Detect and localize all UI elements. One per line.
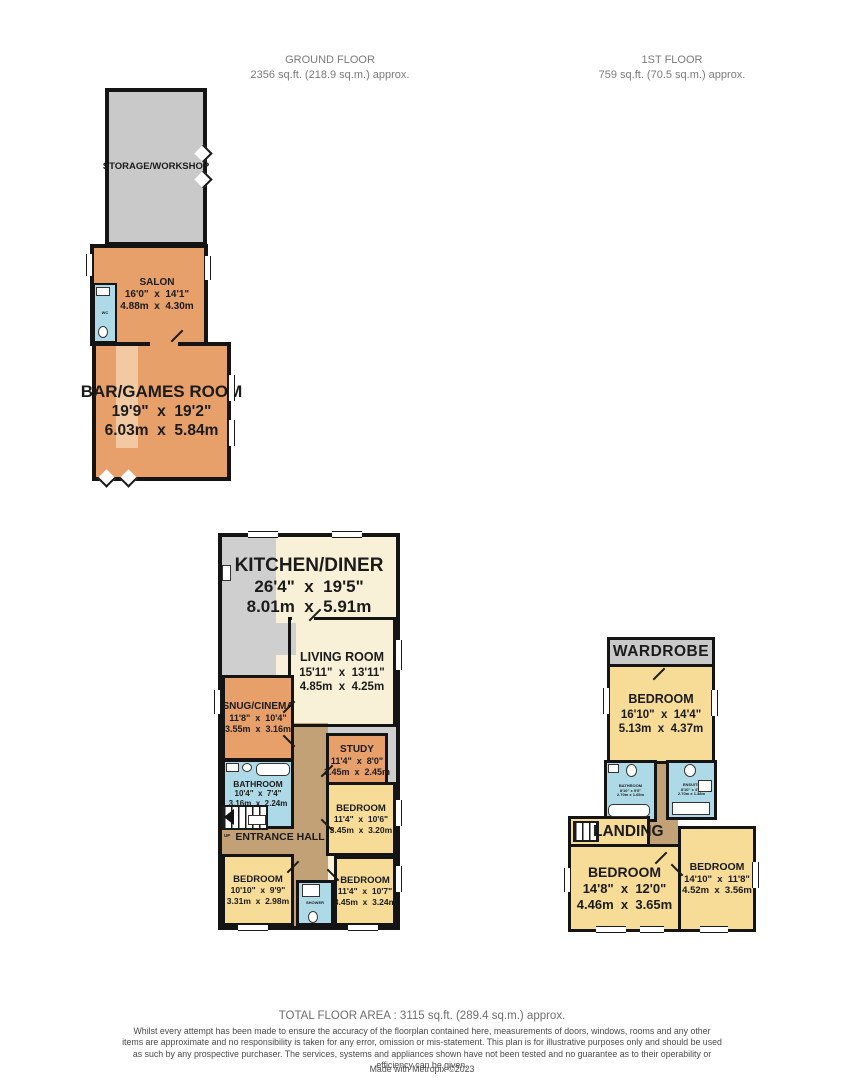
bar-games-name: BAR/GAMES ROOM	[81, 382, 243, 403]
entrance-hall-label: ENTRANCE HALL	[232, 831, 328, 843]
bedroom-bottom-right-label: BEDROOM 11'4" x 10'7" 3.45m x 3.24m	[334, 875, 396, 907]
shower-icon	[698, 780, 712, 792]
bedroom-bottom-right-metric: 3.45m x 3.24m	[334, 897, 396, 907]
window	[395, 800, 402, 826]
study-metric: 3.45m x 2.45m	[324, 767, 390, 778]
living-label: LIVING ROOM 15'11" x 13'11" 4.85m x 4.25…	[299, 650, 384, 693]
snug-label: SNUG/CINEMA 11'8" x 10'4" 3.55m x 3.16m	[222, 701, 293, 735]
shower-ground-label: SHOWER	[306, 901, 324, 906]
toilet-icon	[98, 326, 108, 338]
window	[228, 420, 235, 446]
room-bedroom-bottom-left: BEDROOM 10'10" x 9'9" 3.31m x 2.98m	[222, 854, 294, 926]
bedroom-mid-right-name: BEDROOM	[330, 803, 392, 815]
room-study: STUDY 11'4" x 8'0" 3.45m x 2.45m	[326, 733, 388, 789]
window	[248, 531, 278, 538]
ground-floor-main-outline: KITCHEN/DINER 26'4" x 19'5" 8.01m x 5.91…	[218, 533, 400, 930]
bedroom-first-left-name: BEDROOM	[577, 864, 672, 881]
window	[228, 375, 235, 401]
window	[596, 926, 626, 933]
toilet-icon	[626, 764, 637, 777]
window	[332, 531, 362, 538]
ensuite-metric: 2.70m x 1.38m	[678, 792, 705, 797]
window	[752, 862, 759, 888]
room-landing: LANDING	[568, 816, 650, 847]
window	[700, 926, 728, 933]
bath-icon	[256, 763, 290, 776]
room-bar-games: BAR/GAMES ROOM 19'9" x 19'2" 6.03m x 5.8…	[92, 342, 231, 481]
living-imperial: 15'11" x 13'11"	[299, 666, 384, 680]
vanity-icon	[248, 815, 266, 825]
bathroom-first-metric: 2.70m x 1.65m	[617, 793, 644, 798]
salon-imperial: 16'0" x 14'1"	[120, 289, 193, 301]
salon-wc-label: WC	[102, 311, 109, 316]
sink-icon	[226, 763, 239, 772]
room-snug-cinema: SNUG/CINEMA 11'8" x 10'4" 3.55m x 3.16m	[222, 675, 294, 761]
kitchen-label: KITCHEN/DINER 26'4" x 19'5" 8.01m x 5.91…	[222, 555, 396, 617]
toilet-icon	[684, 764, 696, 777]
snug-metric: 3.55m x 3.16m	[222, 724, 293, 735]
window	[86, 254, 93, 276]
bedroom-first-main-metric: 5.13m x 4.37m	[619, 722, 703, 736]
wardrobe-label: WARDROBE	[613, 643, 709, 662]
stairs-up-label: UP	[224, 833, 230, 838]
bedroom-first-main-name: BEDROOM	[619, 692, 703, 707]
ground-floor-header: GROUND FLOOR 2356 sq.ft. (218.9 sq.m.) a…	[230, 53, 430, 83]
first-floor-header: 1ST FLOOR 759 sq.ft. (70.5 sq.m.) approx…	[572, 53, 772, 83]
room-storage-workshop: STORAGE/WORKSHOP	[105, 88, 207, 246]
study-imperial: 11'4" x 8'0"	[324, 756, 390, 767]
salon-metric: 4.88m x 4.30m	[120, 301, 193, 313]
window	[564, 868, 571, 892]
room-bedroom-first-left: BEDROOM 14'8" x 12'0" 4.46m x 3.65m	[568, 844, 681, 932]
bedroom-first-right-name: BEDROOM	[682, 861, 752, 874]
bedroom-first-left-label: BEDROOM 14'8" x 12'0" 4.46m x 3.65m	[577, 864, 672, 913]
landing-label: LANDING	[593, 823, 664, 841]
snug-imperial: 11'8" x 10'4"	[222, 713, 293, 724]
floorplan-page: GROUND FLOOR 2356 sq.ft. (218.9 sq.m.) a…	[0, 0, 844, 1080]
bedroom-bottom-right-name: BEDROOM	[334, 875, 396, 887]
bath-icon	[608, 804, 650, 817]
bedroom-first-right-imperial: 14'10" x 11'8"	[682, 874, 752, 886]
window	[640, 926, 664, 933]
sink-icon	[608, 764, 619, 773]
first-floor-title: 1ST FLOOR	[572, 53, 772, 68]
first-floor-area: 759 sq.ft. (70.5 sq.m.) approx.	[572, 68, 772, 83]
kitchen-imperial: 26'4" x 19'5"	[222, 577, 396, 597]
metropix-credit: Made with Metropix ©2023	[0, 1064, 844, 1074]
bedroom-bottom-right-imperial: 11'4" x 10'7"	[334, 886, 396, 896]
toilet-icon	[308, 911, 318, 923]
bedroom-bottom-left-metric: 3.31m x 2.98m	[227, 896, 289, 906]
bathroom-ground-imperial: 10'4" x 7'4"	[229, 789, 288, 799]
bedroom-bottom-left-name: BEDROOM	[227, 874, 289, 886]
bedroom-mid-right-metric: 3.45m x 3.20m	[330, 825, 392, 835]
sink-icon	[242, 763, 252, 772]
bar-games-metric: 6.03m x 5.84m	[81, 422, 243, 441]
total-floor-area: TOTAL FLOOR AREA : 3115 sq.ft. (289.4 sq…	[0, 1010, 844, 1022]
ground-floor-title: GROUND FLOOR	[230, 53, 430, 68]
sink-icon	[96, 287, 110, 296]
window	[214, 690, 221, 714]
bar-games-label: BAR/GAMES ROOM 19'9" x 19'2" 6.03m x 5.8…	[81, 382, 243, 441]
stairs-arrow-icon	[224, 809, 234, 825]
kitchen-name: KITCHEN/DINER	[222, 555, 396, 577]
bedroom-first-main-label: BEDROOM 16'10" x 14'4" 5.13m x 4.37m	[619, 692, 703, 735]
room-bedroom-bottom-right: BEDROOM 11'4" x 10'7" 3.45m x 3.24m	[334, 856, 396, 926]
ground-floor-area: 2356 sq.ft. (218.9 sq.m.) approx.	[230, 68, 430, 83]
window	[711, 690, 718, 716]
bedroom-bottom-left-label: BEDROOM 10'10" x 9'9" 3.31m x 2.98m	[227, 874, 289, 906]
bathroom-ground-name: BATHROOM	[229, 779, 288, 789]
storage-workshop-label: STORAGE/WORKSHOP	[103, 161, 209, 173]
room-bedroom-first-main: BEDROOM 16'10" x 14'4" 5.13m x 4.37m	[607, 664, 715, 764]
salon-label: SALON 16'0" x 14'1" 4.88m x 4.30m	[104, 277, 193, 314]
window	[238, 924, 268, 931]
bedroom-first-left-metric: 4.46m x 3.65m	[577, 897, 672, 913]
window	[603, 688, 610, 714]
bathroom-first-label: BATHROOM 8'10" x 5'5" 2.70m x 1.65m	[617, 784, 644, 798]
bedroom-mid-right-imperial: 11'4" x 10'6"	[330, 814, 392, 824]
room-bedroom-first-right: BEDROOM 14'10" x 11'8" 4.52m x 3.56m	[678, 826, 756, 932]
bar-games-imperial: 19'9" x 19'2"	[81, 403, 243, 422]
bedroom-mid-right-label: BEDROOM 11'4" x 10'6" 3.45m x 3.20m	[330, 803, 392, 835]
window	[395, 640, 402, 670]
window	[348, 924, 378, 931]
bedroom-first-left-imperial: 14'8" x 12'0"	[577, 881, 672, 897]
bedroom-first-right-label: BEDROOM 14'10" x 11'8" 4.52m x 3.56m	[682, 861, 752, 897]
living-name: LIVING ROOM	[299, 650, 384, 665]
bedroom-first-right-metric: 4.52m x 3.56m	[682, 885, 752, 897]
room-bedroom-mid-right: BEDROOM 11'4" x 10'6" 3.45m x 3.20m	[326, 782, 396, 856]
window	[395, 866, 402, 892]
salon-name: SALON	[120, 277, 193, 289]
shower-icon	[302, 884, 320, 897]
bedroom-bottom-left-imperial: 10'10" x 9'9"	[227, 885, 289, 895]
living-metric: 4.85m x 4.25m	[299, 680, 384, 694]
bedroom-first-main-imperial: 16'10" x 14'4"	[619, 708, 703, 722]
kitchen-metric: 8.01m x 5.91m	[222, 597, 396, 617]
sink-unit-icon	[672, 802, 710, 815]
study-name: STUDY	[324, 744, 390, 756]
window	[204, 256, 211, 280]
study-label: STUDY 11'4" x 8'0" 3.45m x 2.45m	[324, 744, 390, 778]
room-living: LIVING ROOM 15'11" x 13'11" 4.85m x 4.25…	[288, 617, 396, 727]
